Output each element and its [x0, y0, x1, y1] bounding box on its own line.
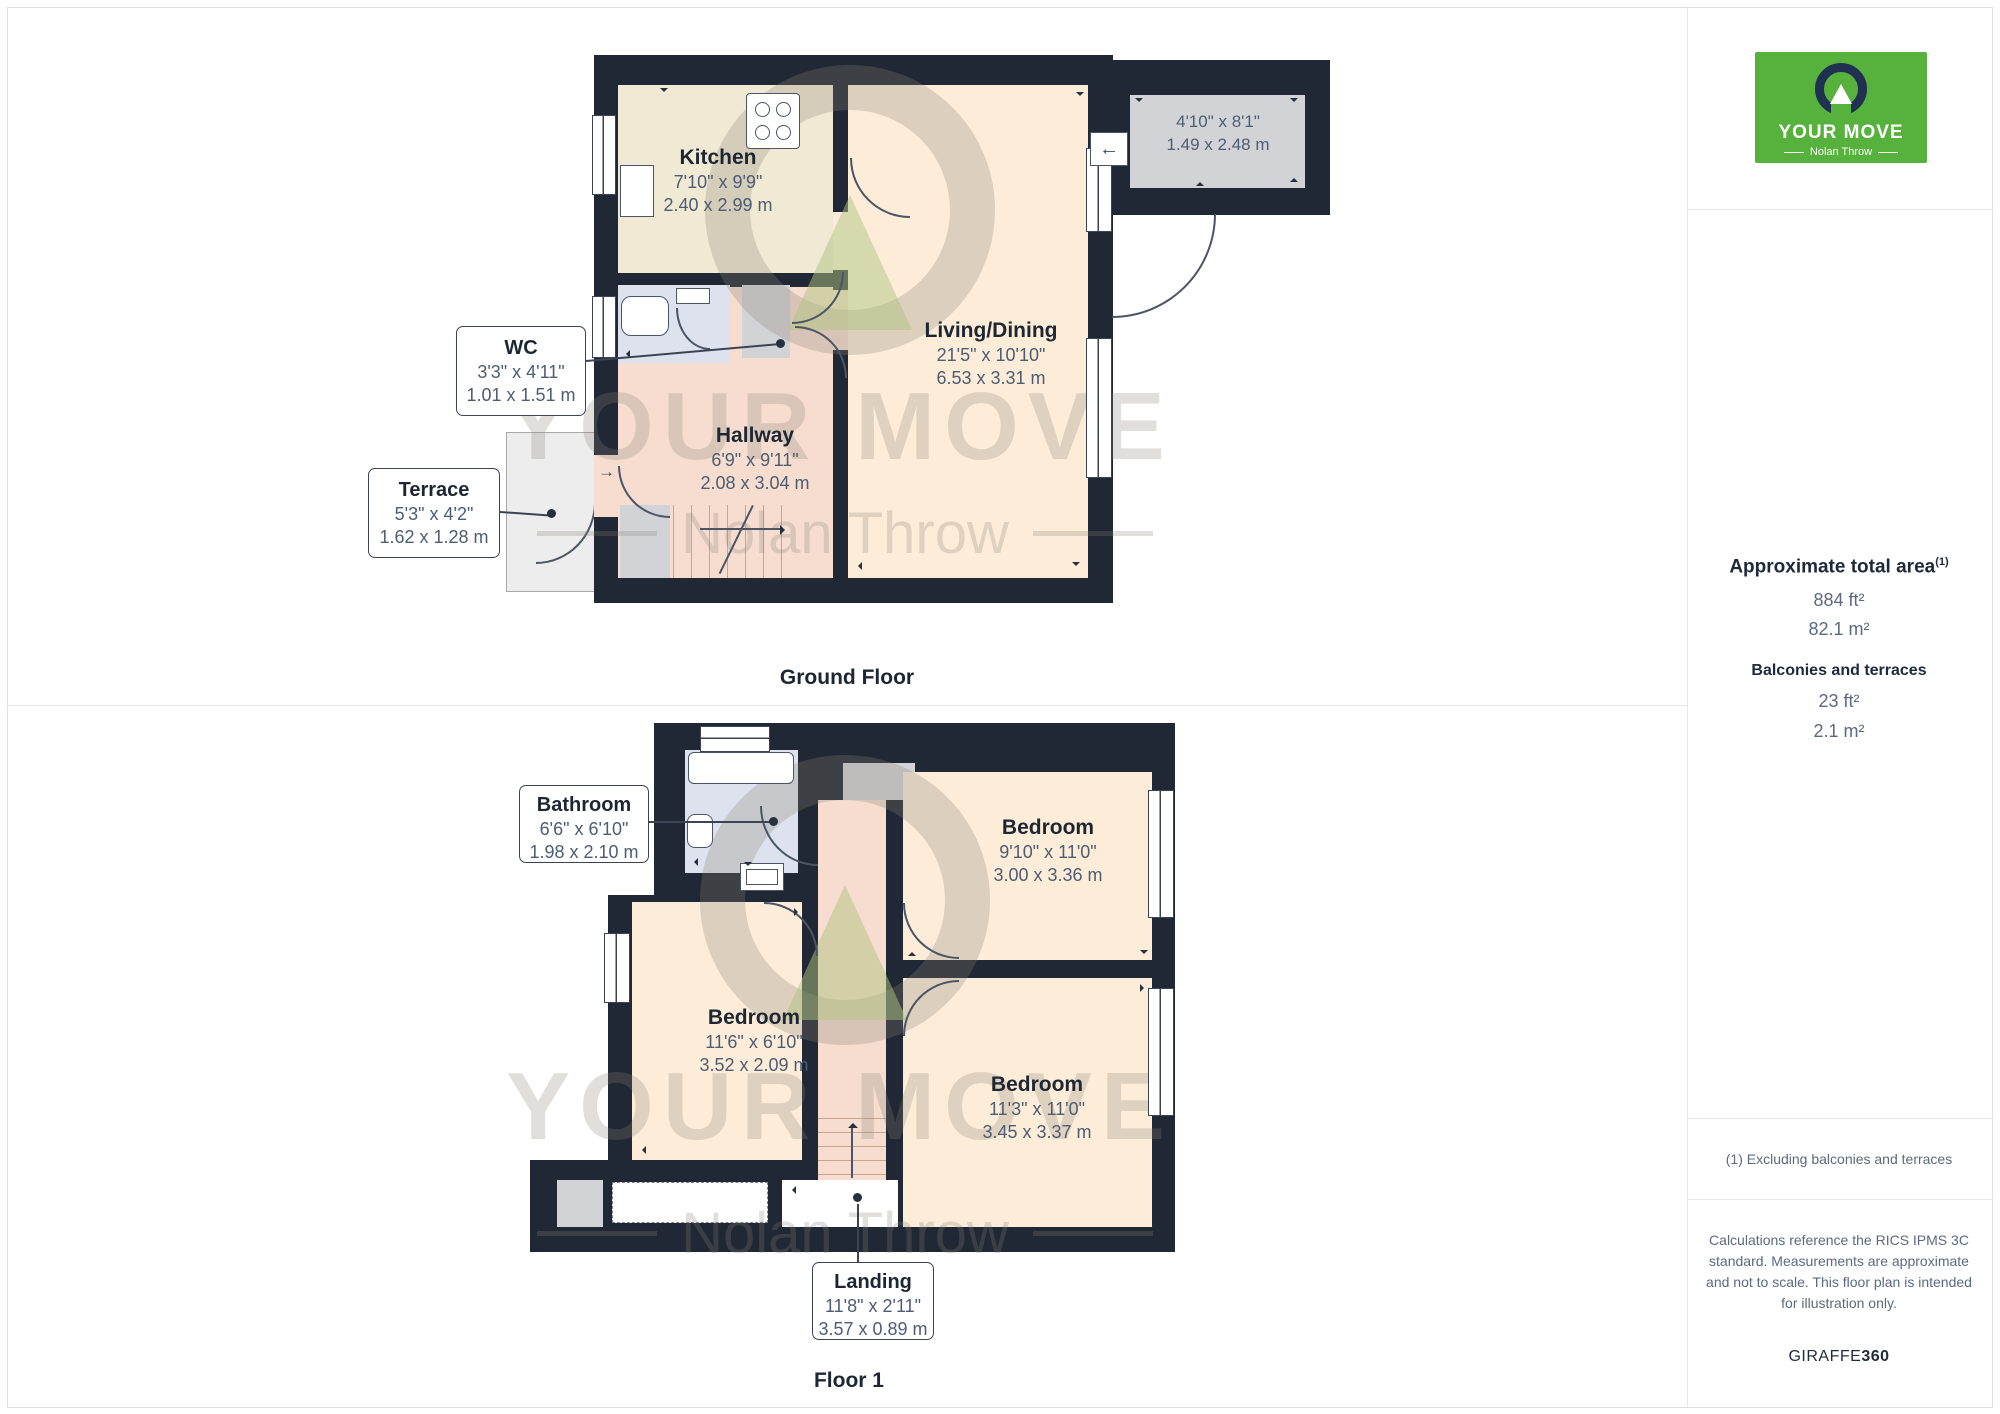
- total-area-footnote-marker: (1): [1935, 556, 1948, 568]
- landing-callout: Landing 11'8" x 2'11" 3.57 x 0.89 m: [812, 1262, 934, 1340]
- corner-marker: [1140, 984, 1148, 992]
- stair-arrow-icon: [848, 1118, 858, 1128]
- room-name: Kitchen: [618, 145, 818, 171]
- balconies-heading: Balconies and terraces: [1690, 662, 1988, 680]
- living-dining-label: Living/Dining 21'5" x 10'10" 6.53 x 3.31…: [871, 318, 1111, 390]
- callout-name: Terrace: [369, 477, 499, 503]
- wc-window: [592, 296, 616, 358]
- corner-marker: [788, 1186, 796, 1194]
- room-dim-metric: 2.08 x 3.04 m: [655, 472, 855, 495]
- corner-marker: [1290, 98, 1298, 106]
- giraffe360-normal: GIRAFFE: [1788, 1348, 1861, 1365]
- room-dim-imperial: 11'6" x 6'10": [654, 1031, 854, 1054]
- callout-dim-imperial: 5'3" x 4'2": [369, 503, 499, 526]
- terrace-leader-dot: [547, 509, 556, 518]
- corner-marker: [690, 858, 698, 866]
- corner-marker: [794, 908, 802, 916]
- stair-arrow-icon: [780, 525, 790, 535]
- kitchen-label: Kitchen 7'10" x 9'9" 2.40 x 2.99 m: [618, 145, 818, 217]
- hallway-label: Hallway 6'9" x 9'11" 2.08 x 3.04 m: [655, 423, 855, 495]
- room-name: Bedroom: [937, 1072, 1137, 1098]
- callout-name: Landing: [813, 1269, 933, 1295]
- stair-direction-line: [851, 1128, 853, 1178]
- room-name: Bedroom: [948, 815, 1148, 841]
- ground-floor-title: Ground Floor: [747, 666, 947, 690]
- bedroom-top-window: [1148, 790, 1174, 918]
- total-area-ft: 884 ft²: [1690, 590, 1988, 611]
- balconies-m: 2.1 m²: [1690, 721, 1988, 742]
- logo-sub-text: Nolan Throw: [1755, 146, 1927, 158]
- logo-triangle-icon: [1830, 84, 1852, 104]
- total-area-heading-text: Approximate total area: [1729, 556, 1935, 577]
- floorplan-page: YOUR MOVE Nolan Throw ←: [0, 0, 2000, 1414]
- room-dim-metric: 3.52 x 2.09 m: [654, 1054, 854, 1077]
- room-dim-metric: 1.49 x 2.48 m: [1118, 133, 1318, 156]
- landing-leader-dot: [853, 1193, 862, 1202]
- storage-dashed-area: [612, 1182, 768, 1223]
- bathroom-window: [700, 726, 770, 752]
- callout-dim-metric: 1.98 x 2.10 m: [520, 841, 648, 864]
- callout-dim-imperial: 6'6" x 6'10": [520, 818, 648, 841]
- floor-section-divider: [7, 705, 1687, 706]
- logo-sub-label: Nolan Throw: [1810, 146, 1872, 158]
- bedroom-left-window: [604, 933, 630, 1003]
- room-dim-metric: 6.53 x 3.31 m: [871, 367, 1111, 390]
- room-name: Hallway: [655, 423, 855, 449]
- wc-callout: WC 3'3" x 4'11" 1.01 x 1.51 m: [456, 326, 586, 416]
- giraffe360-bold: 360: [1861, 1348, 1889, 1365]
- arrow-right-icon: →: [598, 462, 615, 482]
- disclaimer: Calculations reference the RICS IPMS 3C …: [1706, 1230, 1972, 1314]
- wc-leader-dot: [776, 339, 785, 348]
- corner-marker: [1196, 178, 1204, 186]
- bathroom-sink-icon: [687, 814, 713, 848]
- room-dim-imperial: 21'5" x 10'10": [871, 344, 1111, 367]
- corner-marker: [744, 862, 752, 870]
- corner-marker: [1140, 950, 1148, 958]
- callout-dim-metric: 1.62 x 1.28 m: [369, 526, 499, 549]
- logo-dash: [1784, 152, 1804, 153]
- sidebar-divider-top: [1687, 209, 1993, 210]
- total-area-heading: Approximate total area(1): [1690, 556, 1988, 578]
- footnote: (1) Excluding balconies and terraces: [1690, 1151, 1988, 1167]
- arrow-left-icon: ←: [1099, 139, 1119, 159]
- room-dim-imperial: 4'10" x 8'1": [1118, 110, 1318, 133]
- callout-dim-imperial: 11'8" x 2'11": [813, 1295, 933, 1318]
- landing-room: [782, 1180, 898, 1227]
- callout-name: Bathroom: [520, 792, 648, 818]
- room-dim-metric: 3.45 x 3.37 m: [937, 1121, 1137, 1144]
- room-name: Living/Dining: [871, 318, 1111, 344]
- landing-leader-line: [857, 1204, 859, 1262]
- callout-name: WC: [457, 335, 585, 361]
- bathroom-leader-line: [649, 821, 771, 823]
- corner-marker: [1072, 562, 1080, 570]
- bathroom-callout: Bathroom 6'6" x 6'10" 1.98 x 2.10 m: [519, 785, 649, 863]
- room-dim-imperial: 6'9" x 9'11": [655, 449, 855, 472]
- room-name: Bedroom: [654, 1005, 854, 1031]
- bathtub-icon: [688, 752, 794, 784]
- logo-dash: [1878, 152, 1898, 153]
- wc-sink-icon: [676, 288, 710, 304]
- bedroom-top-label: Bedroom 9'10" x 11'0" 3.00 x 3.36 m: [948, 815, 1148, 887]
- logo-brand-text: YOUR MOVE: [1755, 122, 1927, 144]
- cupboard: [557, 1180, 603, 1227]
- bathroom-leader-dot: [769, 817, 778, 826]
- callout-dim-metric: 3.57 x 0.89 m: [813, 1318, 933, 1341]
- sidebar-divider-disclaimer: [1687, 1199, 1993, 1200]
- sidebar-divider: [1687, 7, 1688, 1407]
- room-dim-imperial: 11'3" x 11'0": [937, 1098, 1137, 1121]
- terrace-callout: Terrace 5'3" x 4'2" 1.62 x 1.28 m: [368, 468, 500, 558]
- bedroom-bottom-label: Bedroom 11'3" x 11'0" 3.45 x 3.37 m: [937, 1072, 1137, 1144]
- corner-marker: [908, 948, 916, 956]
- corner-marker: [854, 562, 862, 570]
- room-dim-imperial: 7'10" x 9'9": [618, 171, 818, 194]
- room-dim-imperial: 9'10" x 11'0": [948, 841, 1148, 864]
- total-area-m: 82.1 m²: [1690, 619, 1988, 640]
- corner-marker: [638, 1146, 646, 1154]
- corner-marker: [1135, 98, 1143, 106]
- room-dim-metric: 3.00 x 3.36 m: [948, 864, 1148, 887]
- agency-logo: YOUR MOVE Nolan Throw: [1755, 52, 1927, 163]
- door-opening: [833, 212, 848, 270]
- bedroom-bottom-window: [1148, 988, 1174, 1116]
- callout-dim-metric: 1.01 x 1.51 m: [457, 384, 585, 407]
- corner-marker: [660, 88, 668, 96]
- kitchen-window: [592, 115, 616, 195]
- balconies-ft: 23 ft²: [1690, 691, 1988, 712]
- sidebar-divider-footnote: [1687, 1118, 1993, 1119]
- callout-dim-imperial: 3'3" x 4'11": [457, 361, 585, 384]
- room-dim-metric: 2.40 x 2.99 m: [618, 194, 818, 217]
- garage-label: 4'10" x 8'1" 1.49 x 2.48 m: [1118, 110, 1318, 156]
- hob-icon: [746, 93, 800, 149]
- corner-marker: [1290, 174, 1298, 182]
- wc-bath-icon: [621, 296, 669, 336]
- giraffe360-credit: GIRAFFE360: [1690, 1348, 1988, 1366]
- floor1-title: Floor 1: [749, 1369, 949, 1393]
- logo-ring-gap: [1831, 104, 1851, 116]
- bedroom-left-label: Bedroom 11'6" x 6'10" 3.52 x 2.09 m: [654, 1005, 854, 1077]
- corner-marker: [1076, 92, 1084, 100]
